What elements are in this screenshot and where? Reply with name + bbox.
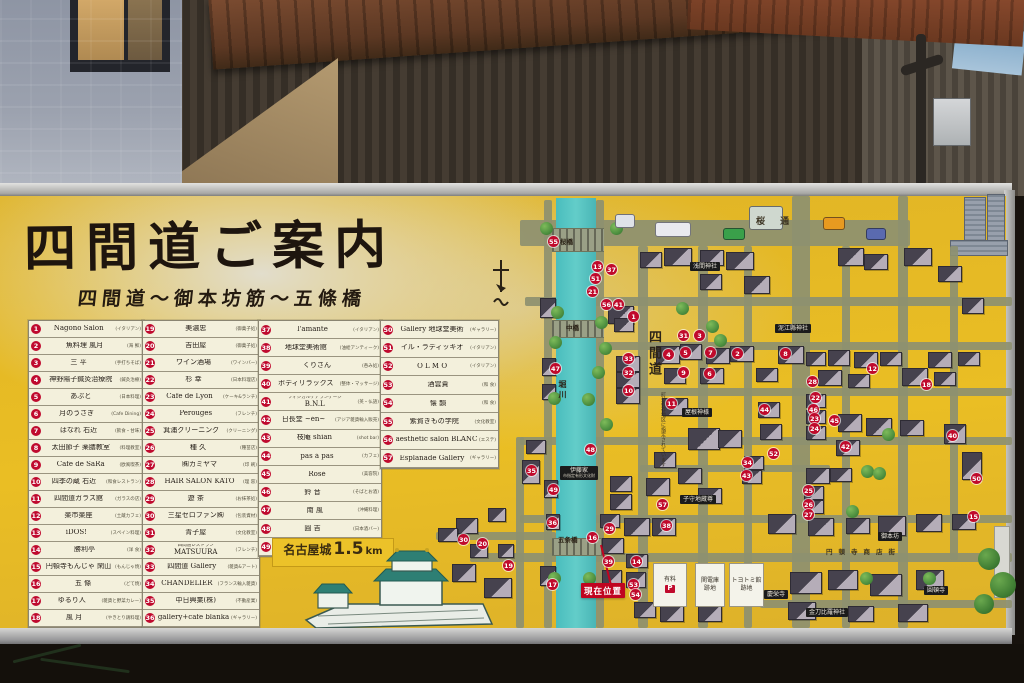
legend-item: 32四間道レストランMATSUURA(フレンチ) xyxy=(143,542,259,559)
map-building xyxy=(806,352,826,366)
legend-number-badge: 3 xyxy=(31,358,41,368)
legend-name: 懐 韻 xyxy=(395,400,481,407)
drain-pipe xyxy=(916,34,926,186)
map-building xyxy=(848,606,874,622)
map-building xyxy=(830,468,852,482)
legend-number-badge: 26 xyxy=(145,443,155,453)
map-tree xyxy=(923,572,936,585)
legend-number-badge: 21 xyxy=(145,358,155,368)
map-vehicle xyxy=(723,228,745,240)
map-place-sublabel: 市指定有形文化財 xyxy=(563,474,595,479)
legend-number-badge: 22 xyxy=(145,375,155,385)
legend-name: イル・ラディッキオ xyxy=(395,344,469,351)
legend-name: 四間道レストランMATSUURA xyxy=(157,544,234,556)
map-text-label: 桜橋 xyxy=(560,236,573,246)
map-marker-57: 57 xyxy=(657,499,668,510)
map-marker-8: 8 xyxy=(780,348,791,359)
legend-category: (雑貨&アート) xyxy=(227,564,257,570)
legend-column-3: 37l'amante(イタリアン)38地球堂美術館(油絵アンティーク)39くりさ… xyxy=(258,320,382,557)
legend-category: (スペイン料理) xyxy=(111,530,141,536)
map-marker-43: 43 xyxy=(741,470,752,481)
legend-name: Nagono Salon xyxy=(43,325,114,332)
map-marker-56: 56 xyxy=(601,299,612,310)
legend-category: (不動産業) xyxy=(235,598,257,604)
sign-subtitle: 四間道～御本坊筋～五條橋 xyxy=(77,284,368,311)
map-marker-2: 2 xyxy=(732,348,743,359)
map-marker-22: 22 xyxy=(810,392,821,403)
legend-name-prefix: フィジカルケアランゲージ xyxy=(273,396,356,401)
legend-item: 47南 風(沖縄料理) xyxy=(259,502,381,520)
legend-category: (鍼灸治療) xyxy=(119,377,141,383)
map-building xyxy=(756,368,778,382)
map-building xyxy=(838,414,862,432)
map-text-label: 中橋 xyxy=(566,322,579,332)
legend-name: 枝庵 shian xyxy=(273,434,356,441)
map-marker-39: 39 xyxy=(603,556,614,567)
legend-item: 27㈱カミヤマ(印 刷) xyxy=(143,457,259,474)
legend-category: (手打ちそば) xyxy=(115,360,141,366)
legend-number-badge: 51 xyxy=(383,343,393,353)
legend-item: 15円頓寺もんじゃ 閑山(もんじゃ焼) xyxy=(29,559,143,576)
legend-item: 46鈴 音(そばとお酒) xyxy=(259,484,381,502)
foliage xyxy=(974,594,994,614)
electrical-box xyxy=(933,98,971,146)
legend-item: 34CHANDELIER(フランス輸入雑貨) xyxy=(143,576,259,593)
legend-column-4: 50Gallery 地球堂美術(ギャラリー)51イル・ラディッキオ(イタリアン)… xyxy=(380,320,499,469)
map-tree xyxy=(846,505,859,518)
map-building xyxy=(718,430,742,448)
legend-category: (和 食) xyxy=(482,400,496,406)
map-building xyxy=(808,518,834,536)
legend-name: 青子屋 xyxy=(157,529,234,536)
legend-category: (文化教室) xyxy=(474,419,496,425)
legend-number-badge: 13 xyxy=(31,528,41,538)
legend-item: 8太田節子 薬膳教室(料理教室) xyxy=(29,440,143,457)
map-building xyxy=(726,252,754,270)
map-marker-36: 36 xyxy=(547,517,558,528)
tower-podium xyxy=(950,240,1008,256)
dim-window-pane xyxy=(128,0,162,60)
legend-number-badge: 52 xyxy=(383,361,393,371)
map-tree xyxy=(592,366,605,379)
legend-number-badge: 29 xyxy=(145,494,155,504)
legend-name: 紫賀きもの学院 xyxy=(395,418,473,425)
map-tree xyxy=(540,222,553,235)
legend-item: 19美濃忠(御菓子処) xyxy=(143,321,259,338)
map-marker-7: 7 xyxy=(705,347,716,358)
map-marker-14: 14 xyxy=(631,556,642,567)
map-vehicle xyxy=(823,217,845,230)
map-marker-55: 55 xyxy=(548,236,559,247)
legend-name: Cafe de Lyon xyxy=(157,393,222,400)
map-building xyxy=(818,370,842,386)
map-building xyxy=(916,514,942,532)
map-marker-18: 18 xyxy=(921,379,932,390)
legend-name: 中日興業(株) xyxy=(157,597,234,604)
legend-number-badge: 11 xyxy=(31,494,41,504)
map-building xyxy=(678,468,702,484)
map-marker-25: 25 xyxy=(803,485,814,496)
legend-number-badge: 14 xyxy=(31,545,41,555)
legend-category: (英・仏語) xyxy=(357,399,379,405)
legend-number-badge: 33 xyxy=(145,562,155,572)
photo-scene: 四間道ご案内 四間道～御本坊筋～五條橋 1Nagono Salon(イタリアン)… xyxy=(0,0,1024,683)
legend-number-badge: 7 xyxy=(31,426,41,436)
sign-frame-bottom xyxy=(0,628,1012,645)
legend-name: Perouges xyxy=(157,410,234,417)
map-place-label: 伊藤家市指定有形文化財 xyxy=(560,466,598,480)
legend-item: 11四間道ガラス館(ガラスの店) xyxy=(29,491,143,508)
legend-item: 57Esplanade Gallery(ギャラリー) xyxy=(381,450,498,468)
site-box-label: 関電庫 xyxy=(701,578,719,585)
legend-category: (フランス輸入雑貨) xyxy=(218,581,257,587)
sign-frame-top xyxy=(0,183,1012,196)
map-marker-15: 15 xyxy=(968,511,979,522)
map-building xyxy=(526,440,546,454)
map-marker-48: 48 xyxy=(585,444,596,455)
site-box-label: 跡地 xyxy=(740,586,752,593)
map-building xyxy=(848,374,870,388)
legend-name: 五 條 xyxy=(43,580,123,587)
legend-number-badge: 57 xyxy=(383,453,393,463)
legend-item: 26種 久(種苗店) xyxy=(143,440,259,457)
legend-name: O L M O xyxy=(395,363,469,370)
legend-name: 月のうさぎ xyxy=(43,410,110,417)
legend-category: (美容院) xyxy=(362,471,379,477)
map-building xyxy=(938,266,962,282)
legend-category: (御菓子処) xyxy=(235,343,257,349)
map-marker-29: 29 xyxy=(604,523,615,534)
legend-item: 25箕浦クリーニング(クリーニング) xyxy=(143,423,259,440)
map-tree xyxy=(595,316,608,329)
legend-number-badge: 6 xyxy=(31,409,41,419)
map-place-label: 金刀比羅神社 xyxy=(806,608,848,617)
legend-column-2: 19美濃忠(御菓子処)20吉田屋(御菓子処)21ワイン酒場(ワインバー)22杉 … xyxy=(142,320,260,628)
legend-number-badge: 38 xyxy=(261,343,271,353)
legend-name: あぶと xyxy=(43,393,118,400)
legend-category: (お抹茶処) xyxy=(235,496,257,502)
legend-item: 42日長堂 ~én~(アジア雑貨輸入販売) xyxy=(259,411,381,429)
legend-category: (アジア雑貨輸入販売) xyxy=(335,417,379,423)
legend-item: 20吉田屋(御菓子処) xyxy=(143,338,259,355)
legend-name: 神野陽子鍼灸治療院 xyxy=(43,376,118,383)
map-marker-19: 19 xyxy=(503,560,514,571)
legend-item: 6月のうさぎ(Cafe Dining) xyxy=(29,406,143,423)
map-building xyxy=(806,468,830,484)
legend-item: 24Perouges(フレンチ) xyxy=(143,406,259,423)
legend-name: 円頓寺もんじゃ 閑山 xyxy=(43,563,114,570)
legend-category: (包装資材) xyxy=(235,513,257,519)
legend-number-badge: 12 xyxy=(31,511,41,521)
legend-category: (やきとり鶏料理) xyxy=(106,615,141,621)
legend-number-badge: 45 xyxy=(261,469,271,479)
legend-number-badge: 46 xyxy=(261,487,271,497)
legend-item: 51イル・ラディッキオ(イタリアン) xyxy=(381,339,498,357)
map-place-label: 泥江縣神社 xyxy=(775,324,811,333)
map-marker-6: 6 xyxy=(704,368,715,379)
map-building xyxy=(934,372,956,386)
legend-name: 遊 茶 xyxy=(157,495,234,502)
legend-item: 12楽市楽座(土蔵カフェ) xyxy=(29,508,143,525)
legend-category: (飲食・甘味) xyxy=(115,428,141,434)
map-building xyxy=(610,476,632,492)
nagoya-castle-illustration xyxy=(288,548,498,628)
map-marker-21: 21 xyxy=(587,286,598,297)
map-building xyxy=(768,514,796,534)
map-marker-35: 35 xyxy=(526,465,537,476)
map-tree xyxy=(549,336,562,349)
site-box-label: トヨトミ館 xyxy=(731,578,761,585)
legend-name: Gallery 地球堂美術 xyxy=(395,326,469,333)
map-building xyxy=(864,254,888,270)
legend-number-badge: 49 xyxy=(261,542,271,552)
map-place-label: 圓頓寺 xyxy=(924,586,948,595)
legend-name: Rosé xyxy=(273,471,361,478)
map-vehicle xyxy=(615,214,635,228)
legend-item: 7はなれ 右近(飲食・甘味) xyxy=(29,423,143,440)
legend-number-badge: 36 xyxy=(145,613,155,623)
foliage xyxy=(978,548,1000,570)
map-site-box: 有料P xyxy=(653,563,687,607)
legend-name: aesthetic salon BLANC xyxy=(395,436,478,443)
map-place-label: 慶栄寺 xyxy=(764,590,788,599)
legend-item: 48圓 吉(日本酒バー) xyxy=(259,520,381,538)
legend-item: 50Gallery 地球堂美術(ギャラリー) xyxy=(381,321,498,339)
map-tree xyxy=(714,334,727,347)
legend-category: (沖縄料理) xyxy=(357,507,379,513)
legend-number-badge: 25 xyxy=(145,426,155,436)
legend-item: 23Cafe de Lyon(ケーキ&ランチ) xyxy=(143,389,259,406)
map-marker-3: 3 xyxy=(694,330,705,341)
legend-name: 三 平 xyxy=(43,359,114,366)
legend-category: (フレンチ) xyxy=(235,547,257,553)
legend-number-badge: 31 xyxy=(145,528,155,538)
map-marker-51: 51 xyxy=(590,273,601,284)
parking-icon: P xyxy=(665,585,674,593)
legend-number-badge: 42 xyxy=(261,415,271,425)
map-marker-38: 38 xyxy=(661,520,672,531)
legend-column-1: 1Nagono Salon(イタリアン)2魚料理 風月(海 鮮)3三 平(手打ち… xyxy=(28,320,144,628)
legend-name: 太田節子 薬膳教室 xyxy=(43,444,118,451)
legend-item: 22杉 幸(日本料理店) xyxy=(143,372,259,389)
map-road xyxy=(544,200,552,628)
legend-number-badge: 24 xyxy=(145,409,155,419)
legend-name-prefix: 四間道レストラン xyxy=(157,544,234,549)
legend-item: 28HAIR SALON KATO(理 容) xyxy=(143,474,259,491)
legend-item: 29遊 茶(お抹茶処) xyxy=(143,491,259,508)
legend-name: 鈴 音 xyxy=(273,489,352,496)
map-building xyxy=(688,428,720,450)
compass-north-icon xyxy=(488,258,514,310)
map-marker-24: 24 xyxy=(809,423,820,434)
lit-window-pane xyxy=(78,0,124,60)
map-building xyxy=(790,572,822,594)
map-building xyxy=(760,424,782,440)
map-marker-30: 30 xyxy=(458,534,469,545)
map-marker-27: 27 xyxy=(803,509,814,520)
legend-category: (理 容) xyxy=(243,479,257,485)
legend-number-badge: 50 xyxy=(383,325,393,335)
legend-name: 魚料理 風月 xyxy=(43,342,126,349)
legend-number-badge: 9 xyxy=(31,460,41,470)
building-window xyxy=(70,0,170,72)
map-building xyxy=(828,350,850,366)
legend-name: 勝利亭 xyxy=(43,546,126,553)
legend-item: 21ワイン酒場(ワインバー) xyxy=(143,355,259,372)
legend-category: (文化教室) xyxy=(235,530,257,536)
legend-number-badge: 55 xyxy=(383,417,393,427)
legend-name: 南 風 xyxy=(273,507,356,514)
legend-category: (ギャラリー) xyxy=(470,327,496,333)
legend-name: pas à pas xyxy=(273,453,361,460)
legend-number-badge: 32 xyxy=(145,545,155,555)
legend-name: l'amante xyxy=(273,326,352,333)
horikawa-river xyxy=(556,198,596,628)
legend-number-badge: 56 xyxy=(383,435,393,445)
map-marker-45: 45 xyxy=(829,415,840,426)
legend-name: 三星セロファン㈱ xyxy=(157,512,234,519)
legend-category: (shot bar) xyxy=(357,436,379,441)
legend-category: (欧風喫茶) xyxy=(119,462,141,468)
map-marker-47: 47 xyxy=(550,363,561,374)
legend-name: 四季の蔵 右近 xyxy=(43,478,105,485)
legend-number-badge: 10 xyxy=(31,477,41,487)
map-building xyxy=(664,248,692,266)
map-building xyxy=(452,564,476,582)
legend-number-badge: 43 xyxy=(261,433,271,443)
legend-item: 54懐 韻(和 食) xyxy=(381,395,498,413)
legend-category: (イタリアン) xyxy=(115,326,141,332)
map-building xyxy=(438,528,458,542)
map-building xyxy=(744,276,770,294)
legend-category: (フレンチ) xyxy=(235,411,257,417)
legend-name: 地球堂美術館 xyxy=(273,344,339,351)
legend-item: 45Rosé(美容院) xyxy=(259,466,381,484)
legend-category: (イタリアン) xyxy=(353,327,379,333)
map-marker-12: 12 xyxy=(867,363,878,374)
legend-category: (クリーニング) xyxy=(226,428,257,434)
legend-number-badge: 37 xyxy=(261,325,271,335)
legend-number-badge: 48 xyxy=(261,524,271,534)
site-box-label: 有料 xyxy=(664,577,676,584)
sign-title: 四間道ご案内 xyxy=(24,202,495,282)
signboard: 四間道ご案内 四間道～御本坊筋～五條橋 1Nagono Salon(イタリアン)… xyxy=(0,196,1006,628)
map-marker-11: 11 xyxy=(666,398,677,409)
legend-category: (和 食) xyxy=(482,382,496,388)
map-building xyxy=(700,274,722,290)
map-building xyxy=(488,508,506,522)
legend-item: 13iDOS!(スペイン料理) xyxy=(29,525,143,542)
legend-category: (整体・マッサージ) xyxy=(340,381,379,387)
map-marker-54: 54 xyxy=(630,589,641,600)
map-tree xyxy=(551,306,564,319)
legend-name: はなれ 右近 xyxy=(43,427,114,434)
legend-item: 44pas à pas(カフェ) xyxy=(259,448,381,466)
legend-category: (ギャラリー) xyxy=(470,455,496,461)
legend-category: (料理教室) xyxy=(119,445,141,451)
map-tree xyxy=(861,465,874,478)
legend-number-badge: 20 xyxy=(145,341,155,351)
map-building xyxy=(904,248,932,266)
legend-name: gallery+cafe blanka xyxy=(157,614,230,621)
legend-category: (油絵アンティーク) xyxy=(340,345,379,351)
map-marker-42: 42 xyxy=(840,441,851,452)
legend-number-badge: 47 xyxy=(261,505,271,515)
map-site-box: トヨトミ館跡地 xyxy=(729,563,764,607)
map-marker-4: 4 xyxy=(663,349,674,360)
legend-item: 40ボディリラックス(整体・マッサージ) xyxy=(259,375,381,393)
legend-name: Esplanade Gallery xyxy=(395,455,469,462)
map-marker-17: 17 xyxy=(547,579,558,590)
map-building xyxy=(484,578,512,598)
legend-name: 四間道 Gallery xyxy=(157,563,226,570)
map-marker-34: 34 xyxy=(742,457,753,468)
legend-number-badge: 15 xyxy=(31,562,41,572)
map-place-label: 子守地蔵尊 xyxy=(680,495,716,504)
legend-item: 55紫賀きもの学院(文化教室) xyxy=(381,413,498,431)
legend-category: (日本酒バー) xyxy=(353,526,379,532)
map-building xyxy=(660,606,684,622)
map-tree xyxy=(860,572,873,585)
map-building xyxy=(828,570,858,590)
legend-number-badge: 41 xyxy=(261,397,271,407)
legend-name: 種 久 xyxy=(157,444,239,451)
legend-number-badge: 16 xyxy=(31,579,41,589)
legend-item: 33四間道 Gallery(雑貨&アート) xyxy=(143,559,259,576)
map-marker-13: 13 xyxy=(592,261,603,272)
legend-number-badge: 23 xyxy=(145,392,155,402)
legend-number-badge: 2 xyxy=(31,341,41,351)
current-location-box: 現在位置 xyxy=(581,583,625,598)
legend-category: (雑貨と野菜カレー) xyxy=(101,598,141,604)
legend-item: 41フィジカルケアランゲージB.N.L(英・仏語) xyxy=(259,393,381,411)
legend-name: ゆるり人 xyxy=(43,597,100,604)
legend-item: 4神野陽子鍼灸治療院(鍼灸治療) xyxy=(29,372,143,389)
legend-item: 52O L M O(イタリアン) xyxy=(381,358,498,376)
legend-item: 38地球堂美術館(油絵アンティーク) xyxy=(259,339,381,357)
map-building xyxy=(624,518,650,536)
legend-number-badge: 4 xyxy=(31,375,41,385)
legend-number-badge: 53 xyxy=(383,380,393,390)
map-text-label: 桜 通 xyxy=(756,214,795,227)
map-building xyxy=(962,298,984,314)
legend-category: (エステ) xyxy=(479,437,496,443)
legend-item: 53酒雲貴(和 食) xyxy=(381,376,498,394)
legend-number-badge: 8 xyxy=(31,443,41,453)
map-tree xyxy=(600,418,613,431)
map-building xyxy=(870,574,902,596)
map-marker-44: 44 xyxy=(759,404,770,415)
legend-number-badge: 19 xyxy=(145,324,155,334)
legend-item: 3三 平(手打ちそば) xyxy=(29,355,143,372)
map-site-box: 関電庫跡地 xyxy=(695,563,725,607)
legend-name: ワイン酒場 xyxy=(157,359,230,366)
map-building xyxy=(958,352,980,366)
legend-name: CHANDELIER xyxy=(157,580,217,587)
legend-name: iDOS! xyxy=(43,529,110,536)
legend-number-badge: 30 xyxy=(145,511,155,521)
legend-category: (イタリアン) xyxy=(470,345,496,351)
legend-name: フィジカルケアランゲージB.N.L xyxy=(273,396,356,408)
legend-item: 1Nagono Salon(イタリアン) xyxy=(29,321,143,338)
legend-category: (ギャラリー) xyxy=(231,615,257,621)
legend-number-badge: 54 xyxy=(383,398,393,408)
legend-category: (土蔵カフェ) xyxy=(115,513,141,519)
legend-number-badge: 35 xyxy=(145,596,155,606)
legend-category: (御菓子処) xyxy=(235,326,257,332)
map-building xyxy=(898,604,928,622)
legend-item: 18風 月(やきとり鶏料理) xyxy=(29,610,143,627)
